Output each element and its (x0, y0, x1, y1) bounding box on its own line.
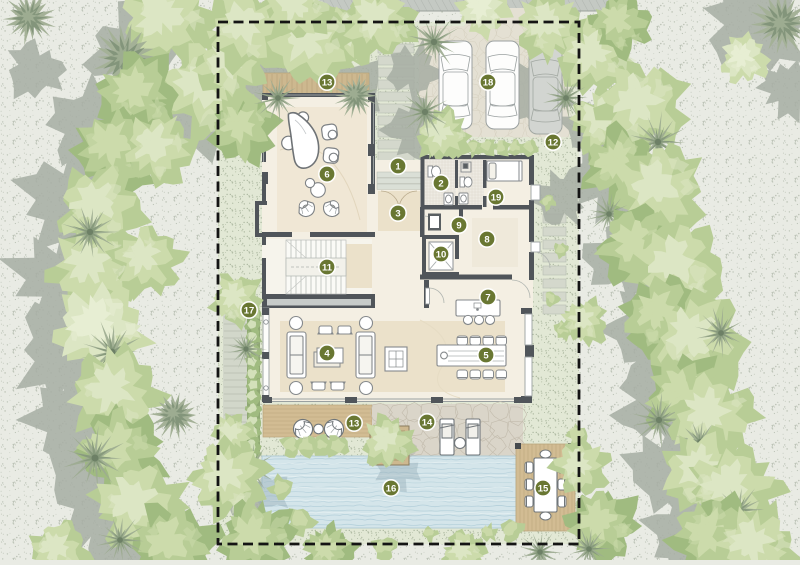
svg-text:3: 3 (395, 208, 400, 219)
svg-text:14: 14 (422, 417, 433, 428)
svg-text:17: 17 (244, 305, 255, 316)
svg-text:5: 5 (483, 350, 489, 361)
svg-text:13: 13 (349, 418, 360, 429)
svg-text:1: 1 (395, 161, 401, 172)
svg-text:6: 6 (324, 169, 329, 180)
svg-text:18: 18 (483, 77, 494, 88)
svg-text:16: 16 (386, 483, 397, 494)
svg-text:10: 10 (436, 249, 447, 260)
svg-text:11: 11 (322, 262, 333, 273)
svg-text:2: 2 (438, 178, 443, 189)
svg-text:8: 8 (484, 234, 489, 245)
svg-text:15: 15 (538, 483, 549, 494)
svg-text:13: 13 (322, 77, 333, 88)
svg-text:9: 9 (456, 220, 461, 231)
svg-text:7: 7 (485, 292, 490, 303)
svg-text:12: 12 (548, 137, 559, 148)
svg-text:19: 19 (491, 192, 502, 203)
svg-text:4: 4 (324, 348, 330, 359)
